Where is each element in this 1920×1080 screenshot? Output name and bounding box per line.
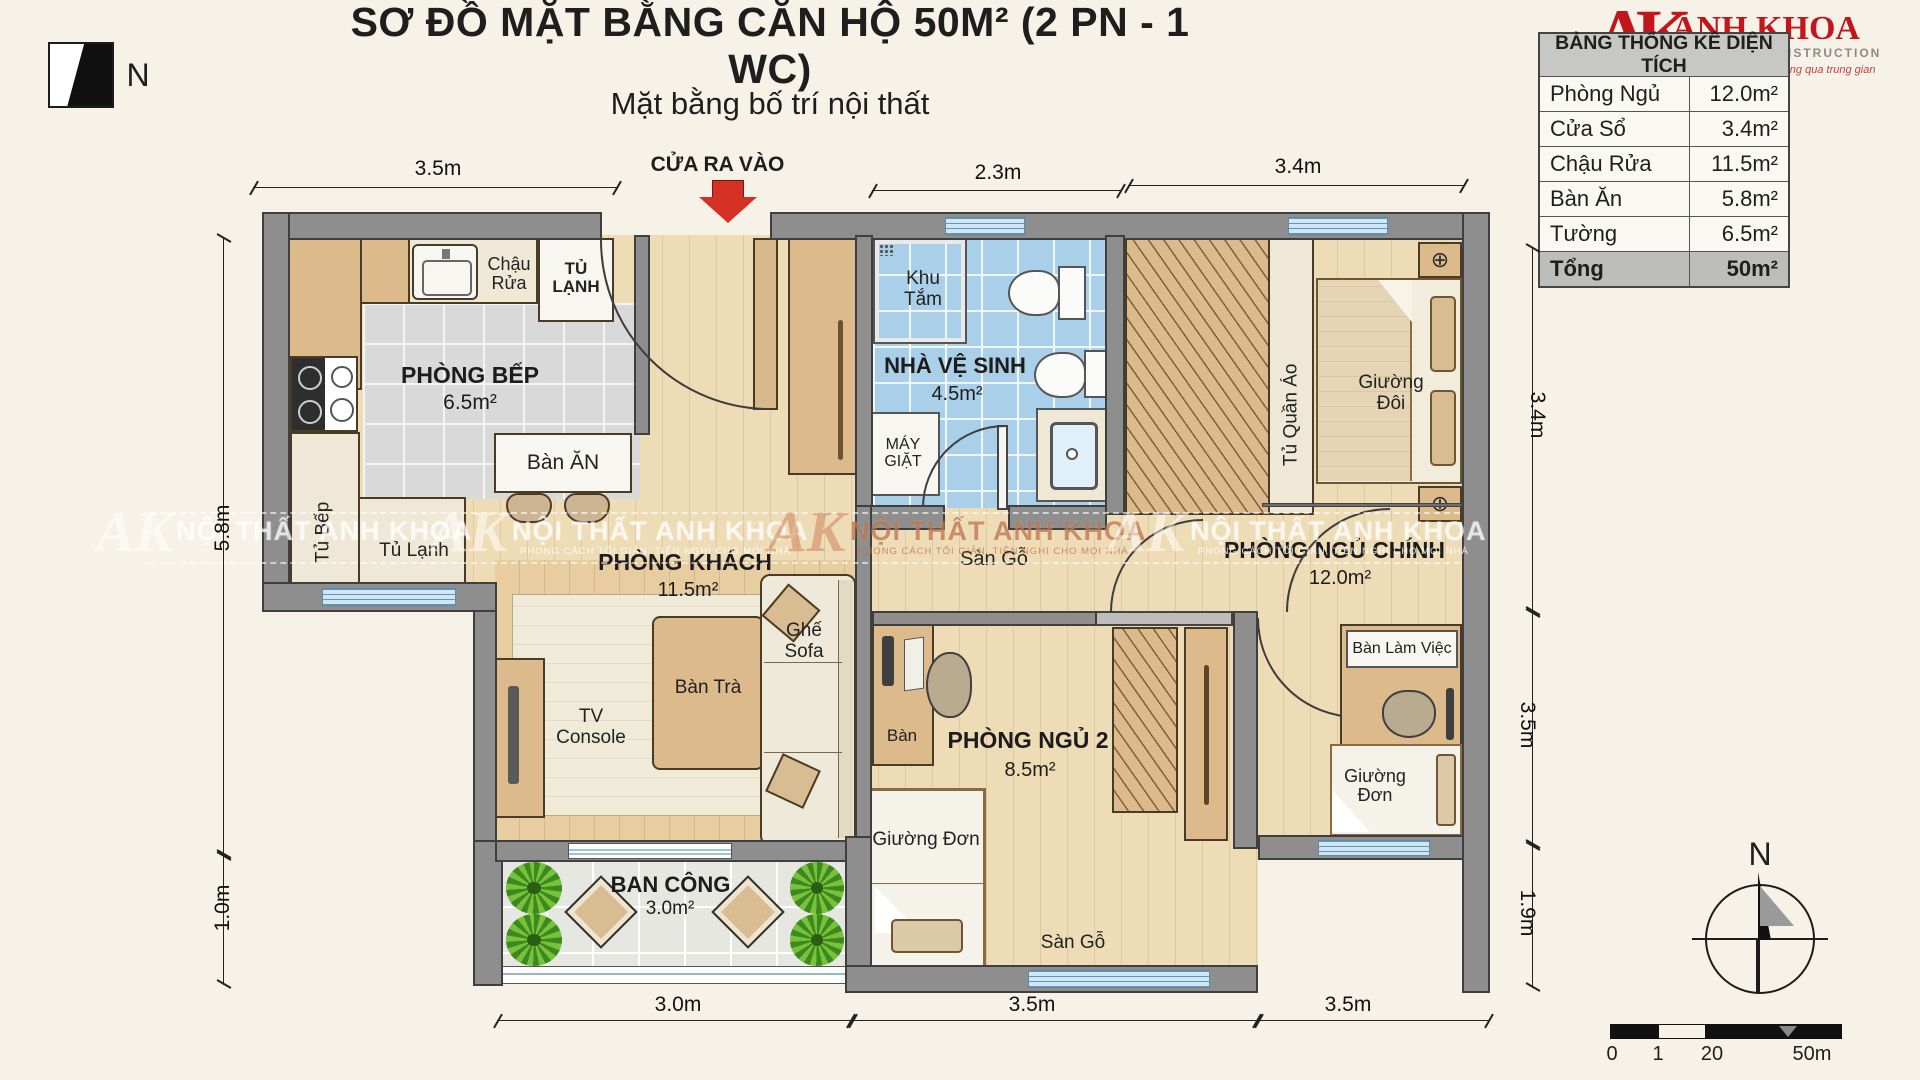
bottom-floor-label: Sàn Gỗ	[1030, 930, 1116, 956]
bed-pillow-icon	[891, 919, 963, 953]
bed-pillow-icon	[1430, 296, 1456, 372]
watermark-monogram: AK	[96, 498, 173, 565]
row-value: 11.5m²	[1689, 147, 1788, 181]
top-wall-left	[262, 212, 602, 240]
exterior-cutout-left	[262, 612, 474, 982]
hall-bathroom-wall	[855, 235, 873, 508]
dim-line-top-1	[253, 187, 618, 188]
cabinet-handle	[1204, 665, 1209, 805]
row-label: Bàn Ăn	[1540, 182, 1689, 216]
living-area: 11.5m²	[638, 578, 738, 602]
dim-line-top-2	[872, 190, 1122, 191]
scale-label-0: 0	[1600, 1042, 1624, 1066]
scale-bar-white-seg	[1659, 1025, 1705, 1038]
window-study	[1318, 840, 1430, 856]
scale-bar	[1610, 1024, 1842, 1039]
compass-nw-label: N	[118, 55, 158, 95]
plant-icon	[506, 862, 562, 914]
table-total-row: Tổng 50m²	[1540, 251, 1788, 286]
dim-bottom-3: 3.5m	[1308, 992, 1388, 1018]
sink-label: Chậu Rửa	[478, 248, 540, 300]
compass-se-needle-wing-icon	[1760, 886, 1794, 926]
bedroom2-name: PHÒNG NGỦ 2	[938, 726, 1118, 754]
row-value: 6.5m²	[1689, 217, 1788, 251]
watermark-text: NỘI THẤT ANH KHOA	[1190, 516, 1486, 547]
exterior-cutout-bottomright	[1258, 860, 1464, 982]
dim-bottom-2: 3.5m	[992, 992, 1072, 1018]
table-row: Phòng Ngủ 12.0m²	[1540, 77, 1788, 111]
master-wardrobe	[1125, 238, 1270, 515]
row-label: Cửa Sổ	[1540, 112, 1689, 146]
sofa-label: Ghế Sofa	[766, 612, 842, 672]
balcony-area: 3.0m²	[630, 898, 710, 920]
dim-right-3: 1.9m	[1514, 878, 1540, 948]
dim-top-3: 3.4m	[1258, 154, 1338, 180]
dim-top-2: 2.3m	[958, 160, 1038, 186]
dim-line-bottom-3	[1258, 1020, 1490, 1021]
row-label: Phòng Ngủ	[1540, 77, 1689, 111]
area-table-header: BẢNG THỐNG KÊ DIỆN TÍCH	[1540, 34, 1788, 77]
compass-se-needle-tail-icon	[1756, 940, 1760, 992]
bathroom-area: 4.5m²	[912, 382, 1002, 406]
stove-burner-icon	[331, 366, 353, 388]
window-top-master	[1288, 217, 1388, 235]
tv-console	[495, 658, 545, 818]
tv-icon	[508, 686, 519, 784]
bedroom2-door-leaf	[1095, 611, 1233, 626]
double-bed-label: Giường Đôi	[1348, 366, 1434, 422]
bedroom2-desk-label: Bàn	[876, 716, 928, 756]
table-row: Cửa Sổ 3.4m²	[1540, 111, 1788, 146]
entrance-arrow-icon	[712, 180, 744, 198]
kitchen-area: 6.5m²	[420, 390, 520, 416]
bedroom2-study-wall	[1233, 611, 1258, 849]
dim-right-2: 3.5m	[1514, 690, 1540, 760]
living-left-wall	[473, 610, 497, 844]
desk-laptop-icon	[904, 637, 924, 692]
plant-icon	[506, 914, 562, 966]
bedroom2-desk-chair	[926, 652, 972, 718]
total-value: 50m²	[1689, 252, 1788, 286]
desk-monitor-icon	[882, 636, 894, 686]
total-label: Tổng	[1540, 252, 1689, 286]
dim-line-top-3	[1128, 185, 1465, 186]
scale-label-50m: 50m	[1782, 1042, 1842, 1066]
sink-faucet-icon	[442, 249, 450, 259]
study-chair	[1382, 690, 1436, 738]
page-title: SƠ ĐỒ MẶT BẰNG CĂN HỘ 50M² (2 PN - 1 WC)	[330, 22, 1210, 70]
table-row: Tường 6.5m²	[1540, 216, 1788, 251]
window-kitchen	[322, 588, 456, 606]
window-top-bathroom	[945, 217, 1025, 235]
entrance-arrow-head-icon	[699, 197, 757, 223]
stove-burner-icon	[298, 400, 322, 424]
bathroom-master-wall	[1105, 235, 1125, 515]
row-value: 3.4m²	[1689, 112, 1788, 146]
window-bedroom2	[1028, 970, 1210, 988]
dim-line-bottom-1	[497, 1020, 852, 1021]
washer-label: MÁY GIẶT	[870, 428, 936, 478]
kitchen-sink	[412, 244, 478, 300]
table-row: Bàn Ăn 5.8m²	[1540, 181, 1788, 216]
nightstand: ⊕	[1418, 242, 1462, 278]
dim-line-bottom-2	[852, 1020, 1258, 1021]
watermark-monogram: AK	[1108, 498, 1185, 565]
watermark-tagline: PHONG CÁCH TỐI GIẢN, TIỆN NGHI CHO MỌI N…	[520, 546, 791, 557]
row-value: 5.8m²	[1689, 182, 1788, 216]
row-label: Chậu Rửa	[1540, 147, 1689, 181]
plant-icon	[790, 914, 844, 966]
single-bed-right-label: Giường Đơn	[1334, 758, 1416, 814]
basin-cabinet	[1036, 408, 1108, 502]
row-label: Tường	[1540, 217, 1689, 251]
entrance-label: CỬA RA VÀO	[630, 152, 805, 178]
study-monitor-icon	[1446, 688, 1454, 740]
dim-left-2: 1.0m	[210, 873, 236, 943]
bedroom2-wardrobe	[1112, 627, 1178, 813]
row-value: 12.0m²	[1689, 77, 1788, 111]
toilet-bowl-icon	[1008, 270, 1060, 316]
stove	[290, 356, 358, 432]
compass-nw-icon	[48, 42, 114, 108]
bathroom-name: NHÀ VỆ SINH	[880, 352, 1030, 380]
stove-burner-icon	[330, 398, 354, 422]
shower-label: Khu Tắm	[888, 262, 958, 318]
watermark-text: NỘI THẤT ANH KHOA	[512, 516, 808, 547]
single-bed-2-label: Giường Đơn	[872, 812, 980, 868]
bedroom2-area: 8.5m²	[985, 758, 1075, 782]
master-door-lintel	[1262, 503, 1462, 507]
watermark-monogram: AK	[768, 498, 845, 565]
watermark-tagline: PHONG CÁCH TỐI GIẢN, TIỆN NGHI CHO MỌI N…	[858, 546, 1129, 557]
hall-closet	[788, 238, 857, 475]
dim-right-1: 3.4m	[1524, 380, 1550, 450]
toilet-bowl-icon	[1034, 352, 1086, 398]
balcony-railing	[500, 966, 847, 984]
bed-pillow-icon	[1436, 754, 1456, 826]
study-desk-label: Bàn Làm Việc	[1348, 632, 1456, 666]
dim-left-1: 5.8m	[210, 493, 236, 563]
basin-drain-icon	[1066, 448, 1078, 460]
table-row: Chậu Rửa 11.5m²	[1540, 146, 1788, 181]
dining-table-label: Bàn ĂN	[498, 438, 628, 488]
dim-bottom-1: 3.0m	[638, 992, 718, 1018]
hall-closet-handle	[838, 320, 843, 460]
balcony-slider-door	[568, 843, 732, 859]
scale-label-20: 20	[1692, 1042, 1732, 1066]
left-wall	[262, 212, 290, 612]
area-table: BẢNG THỐNG KÊ DIỆN TÍCH Phòng Ngủ 12.0m²…	[1538, 32, 1790, 288]
bed-blanket-line	[869, 883, 983, 884]
sofa-cushion-line	[764, 752, 842, 753]
tv-console-label: TV Console	[546, 702, 636, 754]
page-subtitle: Mặt bằng bố trí nội thất	[330, 84, 1210, 124]
watermark-text: NỘI THẤT ANH KHOA	[850, 516, 1146, 547]
compass-se-label: N	[1738, 836, 1782, 872]
balcony-name: BAN CÔNG	[598, 872, 743, 898]
plant-icon	[790, 862, 844, 914]
compass-nw-black-half	[50, 44, 112, 106]
watermark-tagline: PHONG CÁCH TỐI GIẢN, TIỆN NGHI CHO MỌI N…	[1198, 546, 1469, 557]
scale-bar-marker-icon	[1779, 1026, 1797, 1037]
watermark-monogram: AK	[430, 498, 507, 565]
master-wardrobe-label: Tủ Quần Áo	[1272, 320, 1312, 510]
tea-table-label: Bàn Trà	[672, 660, 744, 716]
right-wall	[1462, 212, 1490, 993]
scale-label-1: 1	[1646, 1042, 1670, 1066]
toilet-tank	[1058, 266, 1086, 320]
shower-head-icon	[879, 244, 895, 256]
stove-burner-icon	[298, 366, 322, 390]
kitchen-name: PHÒNG BẾP	[385, 360, 555, 390]
bedroom2-top-wall	[872, 611, 1097, 626]
sink-basin	[422, 260, 472, 296]
bedroom2-cabinet	[1184, 627, 1228, 841]
dim-top-1: 3.5m	[398, 156, 478, 182]
